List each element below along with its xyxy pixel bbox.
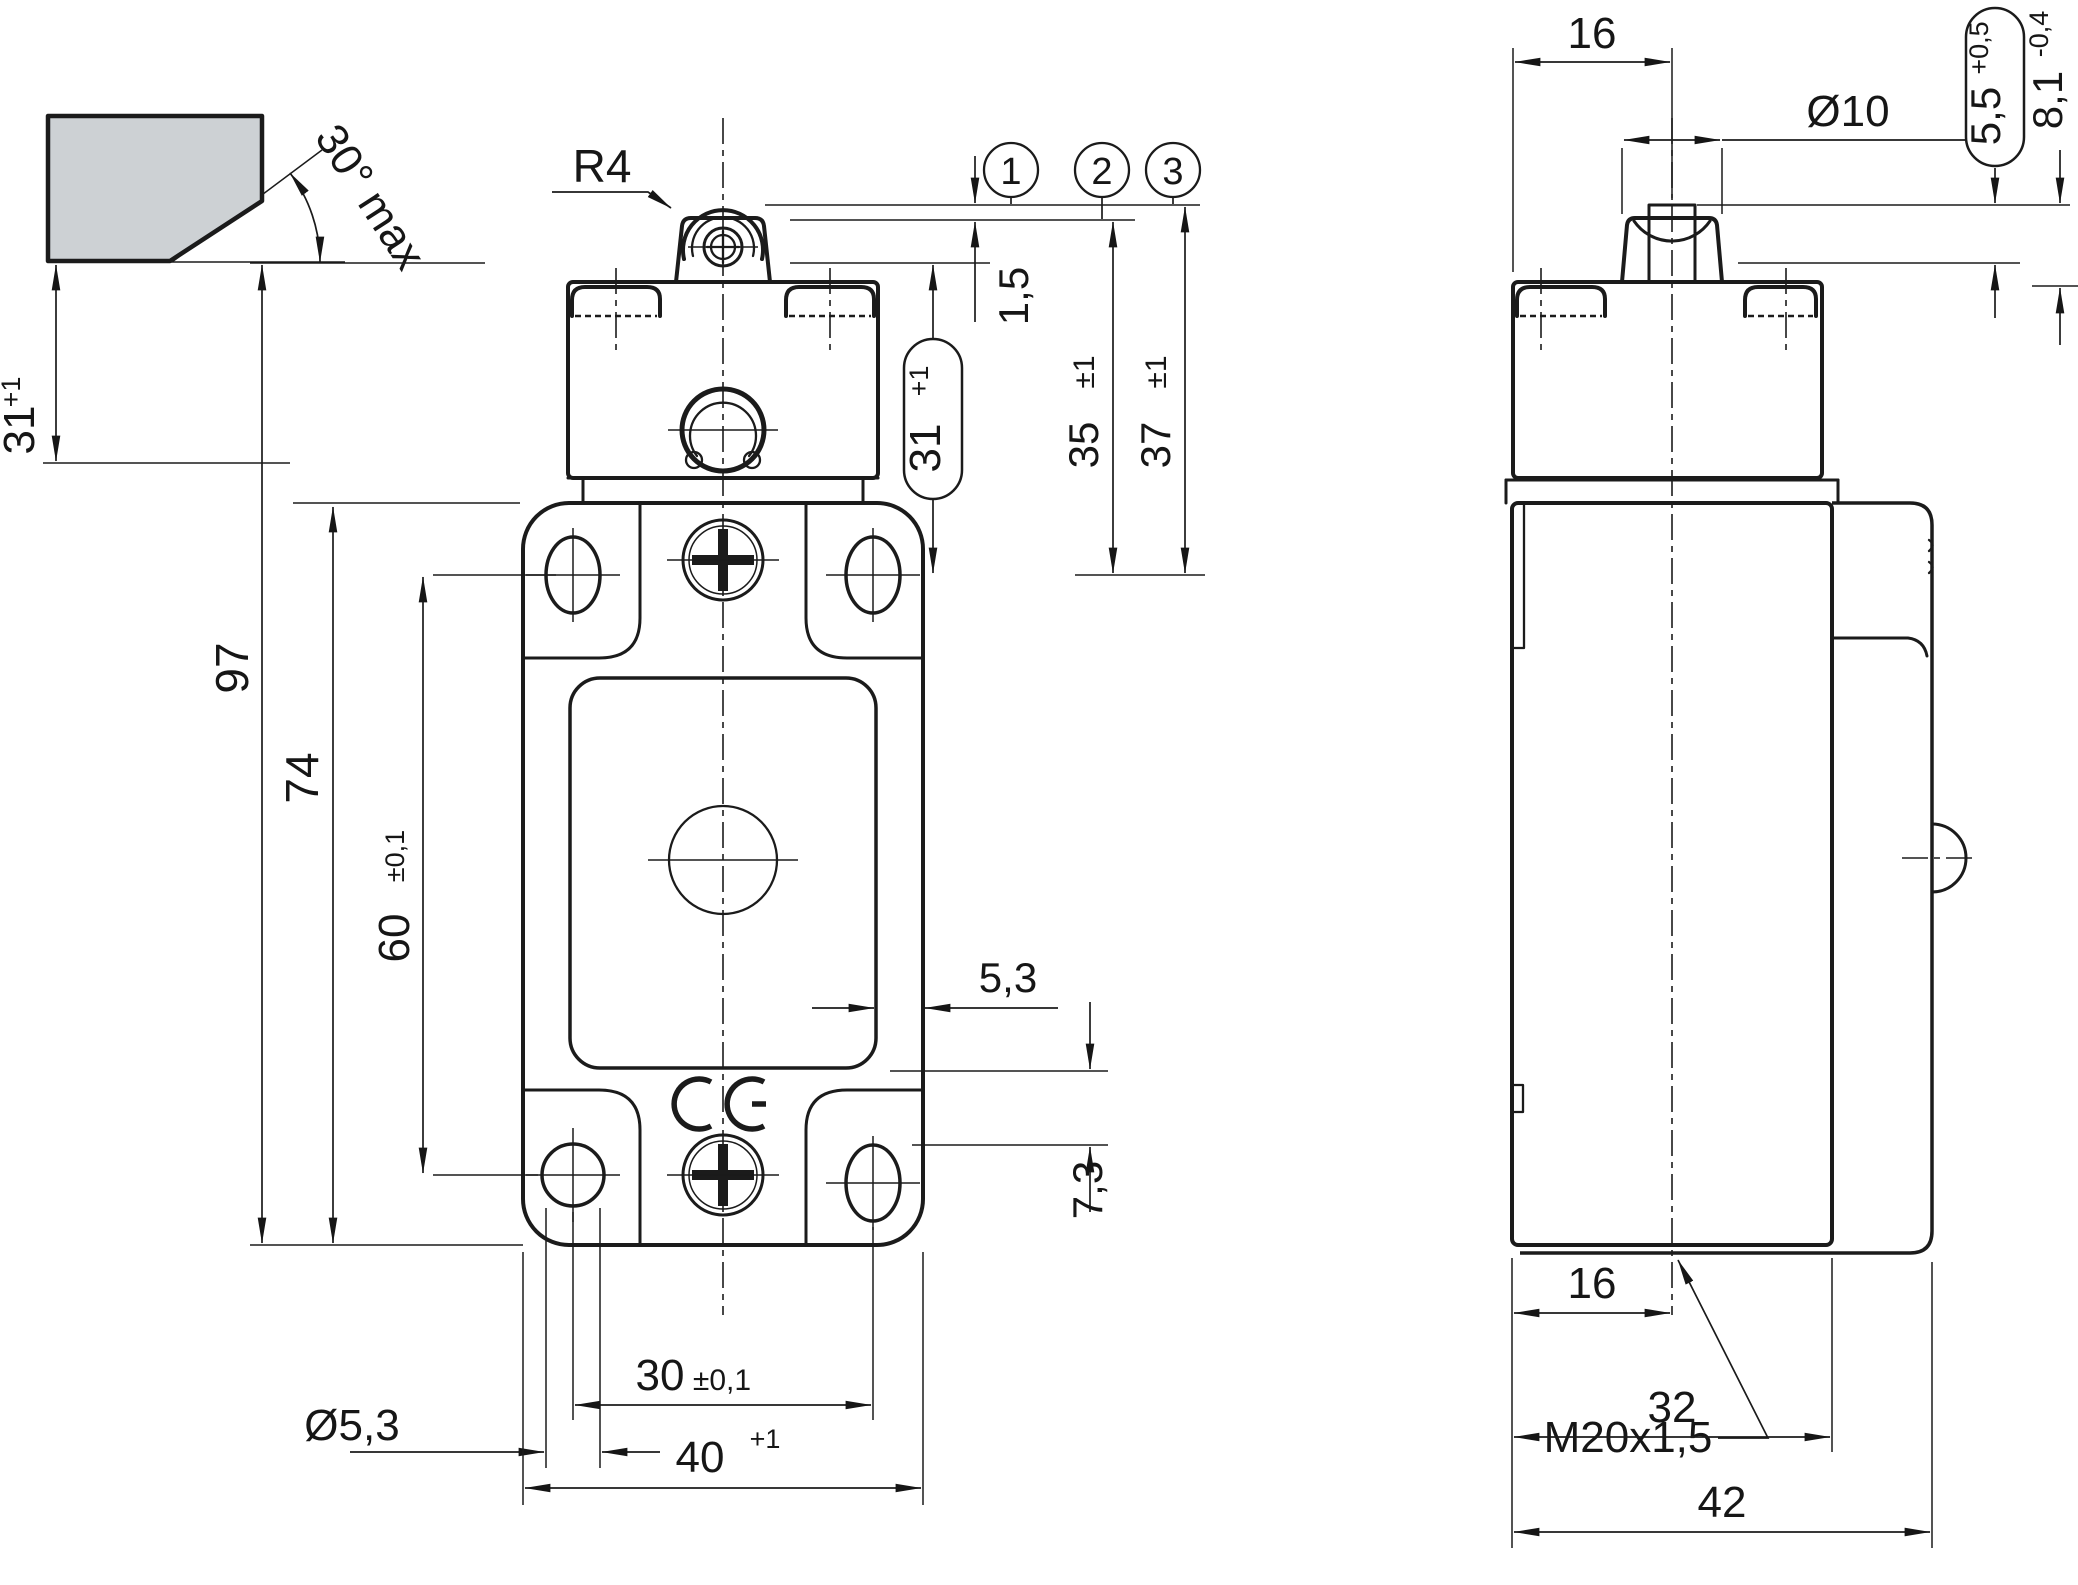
dim-35: 35 ±1 [1060, 222, 1113, 573]
roller-radius-leader [552, 192, 671, 208]
body-left-seam [1514, 505, 1524, 648]
lobe-bottom-left [523, 1090, 640, 1245]
dim-31-left: 31 +1 [0, 265, 290, 463]
dim-16-bottom: 16 [1512, 1258, 1670, 1548]
dim-gap-53: 5,3 [812, 954, 1058, 1008]
head-outline-side [1513, 282, 1822, 478]
dim-35-tol: ±1 [1068, 355, 1101, 388]
front-view: 30° max R4 [0, 116, 1205, 1505]
drawing-canvas: 30° max R4 [0, 0, 2078, 1585]
dim-40-tol: +1 [750, 1424, 781, 1454]
dim-55-tol: +0,5 [1964, 21, 1994, 74]
dim-32-label: 32 [1648, 1383, 1697, 1432]
dim-pretravel-label: 1,5 [990, 267, 1037, 325]
head-ear-right-side [1745, 287, 1816, 316]
ce-mark [674, 1079, 766, 1129]
dim-37-value: 37 [1132, 422, 1179, 469]
dim-30-tol: ±0,1 [693, 1364, 751, 1397]
dim-74-value: 74 [276, 752, 328, 803]
dim-hole-dia-label: Ø5,3 [304, 1401, 399, 1450]
dim-55-value: 5,5 [1962, 87, 2009, 145]
dim-60: 60 ±0,1 [370, 575, 556, 1175]
dim-16-bottom-label: 16 [1568, 1259, 1617, 1308]
side-cover-outline [1520, 503, 1932, 1253]
side-view: 16 Ø10 5,5 +0,5 8,1 -0,4 [1506, 8, 2078, 1548]
dim-gap-53-label: 5,3 [979, 954, 1037, 1001]
lobe-top-left [523, 503, 640, 658]
side-cover-seam [1832, 638, 1927, 656]
dim-35-value: 35 [1060, 422, 1107, 469]
balloon-2-label: 2 [1091, 151, 1112, 193]
dim-97: 97 [206, 265, 262, 1243]
dim-16-top-label: 16 [1568, 9, 1617, 58]
dim-31-left-tol: +1 [0, 377, 26, 408]
dim-40-value: 40 [676, 1433, 725, 1482]
dim-31-capsule-tol: +1 [904, 366, 934, 397]
roller-radius-label: R4 [573, 140, 632, 192]
switch-body-side [1512, 503, 1975, 1253]
cover-screw-bottom [667, 1135, 779, 1215]
dim-37-tol: ±1 [1140, 355, 1173, 388]
dim-plunger-dia: Ø10 [1622, 87, 1985, 214]
balloon-3-label: 3 [1162, 151, 1183, 193]
dim-30-value: 30 [636, 1351, 685, 1400]
dim-31-capsule-frame [904, 339, 962, 499]
dim-60-tol: ±0,1 [380, 830, 410, 882]
balloon-1-label: 1 [1000, 151, 1021, 193]
technical-drawing-page: 30° max R4 [0, 0, 2078, 1585]
dim-81-value: 8,1 [2024, 71, 2071, 129]
dim-31-capsule: 31 +1 [901, 265, 962, 573]
head-ear-left-side [1517, 287, 1605, 316]
dim-37: 37 ±1 [1132, 207, 1185, 573]
roller-radius-callout: R4 [552, 140, 671, 208]
dim-60-value: 60 [370, 914, 419, 963]
cam-angle-arc [290, 173, 320, 262]
dim-73-label: 7,3 [1064, 1161, 1111, 1219]
dim-plunger-dia-label: Ø10 [1806, 87, 1889, 136]
cam-wedge-shape [48, 116, 262, 261]
dim-55: 5,5 +0,5 [1962, 8, 2024, 318]
lobe-bottom-right [806, 1090, 923, 1245]
dim-97-value: 97 [206, 642, 258, 693]
dim-31-left-value: 31 [0, 406, 44, 455]
cover-screw-top [667, 520, 779, 600]
cam-angle-label: 30° max [306, 116, 435, 278]
actuating-cam: 30° max [48, 116, 435, 278]
position-balloons: 1 2 3 [984, 143, 1200, 219]
dim-81-tol: -0,4 [2024, 11, 2054, 58]
dim-31-capsule-value: 31 [901, 424, 950, 473]
dim-42-label: 42 [1698, 1478, 1747, 1527]
lobe-top-right [806, 503, 923, 658]
dim-81: 8,1 -0,4 [2024, 11, 2078, 345]
